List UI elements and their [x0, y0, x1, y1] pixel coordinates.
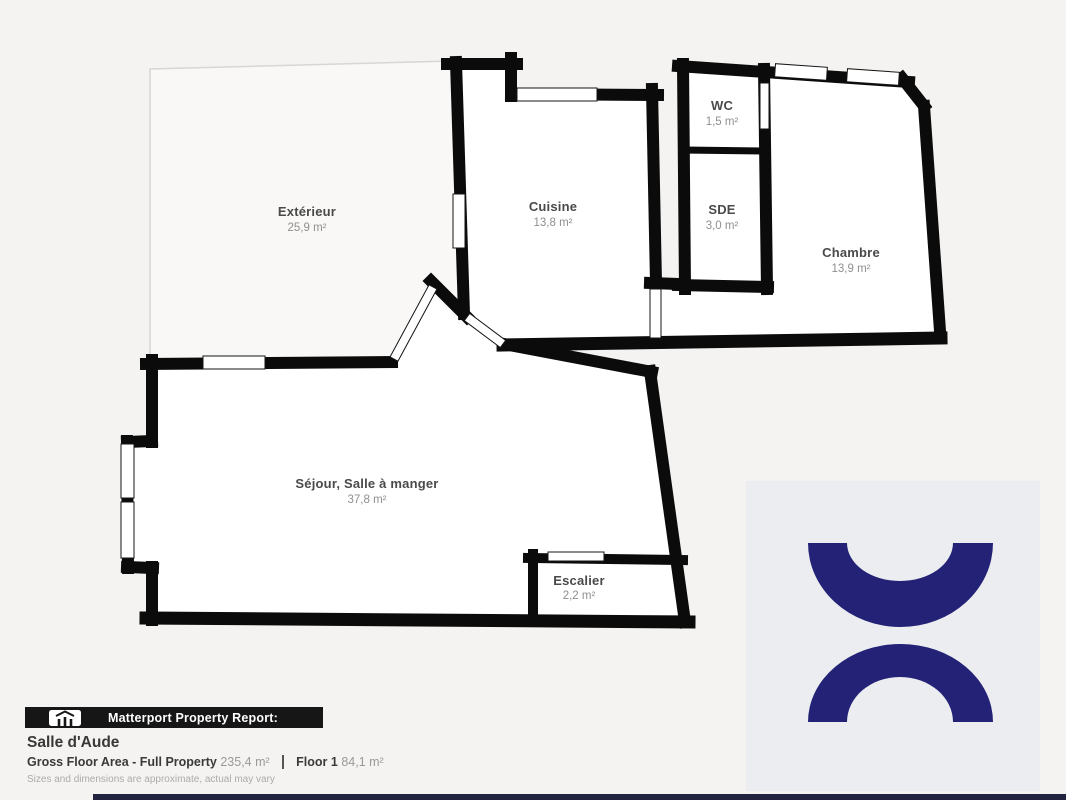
disclaimer-text: Sizes and dimensions are approximate, ac… [27, 774, 275, 785]
room-area-wc: 1,5 m² [706, 116, 739, 128]
brand-logo [746, 481, 1040, 791]
wall-sejour-bottom [146, 618, 689, 622]
room-area-chambre: 13,9 m² [832, 263, 871, 275]
report-bar-label: Matterport Property Report: [108, 711, 278, 725]
window-sejour-left-1 [121, 444, 134, 498]
gross-floor-area-value: 235,4 m² [220, 755, 269, 769]
gross-floor-area-label: Gross Floor Area - Full Property [27, 755, 217, 769]
wall-sde-bottom [678, 285, 768, 287]
room-area-exterieur: 25,9 m² [288, 222, 327, 234]
room-label-wc: WC [711, 98, 733, 113]
wall-wc-sde-divider [684, 150, 764, 151]
wall-cuisine-right [652, 89, 656, 283]
wall-wc-left [683, 64, 685, 289]
metrics-divider [282, 755, 284, 769]
room-label-cuisine: Cuisine [529, 199, 577, 214]
floor-area-metrics: Gross Floor Area - Full Property 235,4 m… [27, 755, 384, 769]
wall-cuisine-left [456, 62, 464, 314]
room-label-escalier: Escalier [553, 573, 604, 588]
page-background: { "floorplan": { "wall_color": "#0b0b0b"… [0, 0, 1066, 800]
window-cuisine-top [517, 88, 597, 101]
report-bar: Matterport Property Report: [25, 707, 323, 728]
room-area-sde: 3,0 m² [706, 220, 739, 232]
door-wc [760, 83, 769, 129]
window-sejour-left-2 [121, 502, 134, 558]
window-cuisine-left [453, 194, 465, 248]
horizontal-scrollbar[interactable] [93, 794, 1066, 800]
room-area-sejour: 37,8 m² [348, 494, 387, 506]
property-title: Salle d'Aude [27, 734, 119, 752]
brand-logo-icon [746, 481, 1040, 791]
floor-label: Floor 1 [296, 755, 338, 769]
room-label-sde: SDE [708, 202, 735, 217]
door-escalier [548, 552, 604, 561]
matterport-house-icon [49, 710, 81, 726]
room-label-chambre: Chambre [822, 245, 880, 260]
window-sejour-top [203, 356, 265, 369]
room-area-cuisine: 13,8 m² [534, 217, 573, 229]
floor-value: 84,1 m² [341, 755, 383, 769]
logo-bottom-arc [808, 644, 993, 722]
door-cuisine-hallway [650, 289, 661, 338]
room-label-exterieur: Extérieur [278, 204, 336, 219]
wall-sejour-top [146, 362, 392, 364]
wall-bottom-long [503, 338, 941, 345]
logo-top-arc [808, 543, 993, 627]
room-label-sejour: Séjour, Salle à manger [295, 476, 438, 491]
room-area-escalier: 2,2 m² [563, 590, 596, 602]
